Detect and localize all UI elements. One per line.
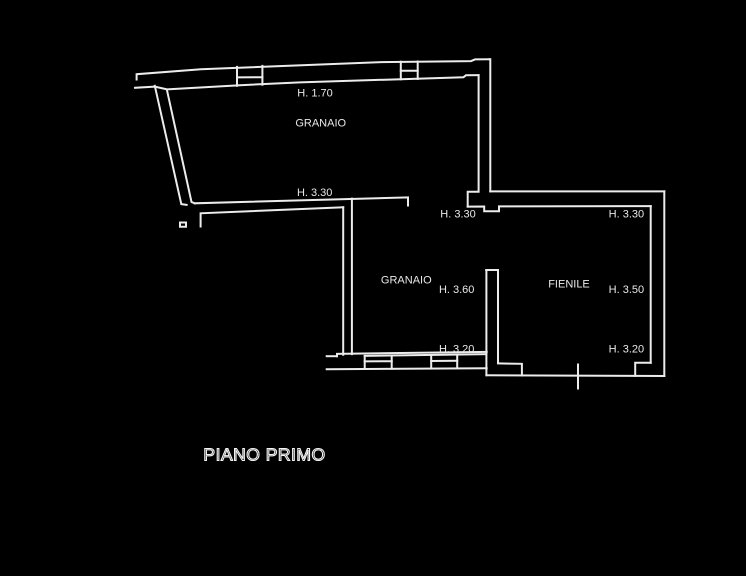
svg-text:H. 3.20: H. 3.20 [609, 343, 644, 355]
svg-text:FIENILE: FIENILE [548, 279, 590, 291]
svg-text:GRANAIO: GRANAIO [381, 275, 432, 287]
svg-text:H. 1.70: H. 1.70 [297, 88, 332, 100]
svg-text:H. 3.20: H. 3.20 [439, 343, 474, 355]
svg-text:H. 3.30: H. 3.30 [609, 209, 644, 221]
svg-text:H. 3.30: H. 3.30 [440, 209, 475, 221]
svg-text:H. 3.50: H. 3.50 [609, 284, 644, 296]
svg-text:H. 3.30: H. 3.30 [297, 187, 332, 199]
svg-text:H. 3.60: H. 3.60 [439, 284, 474, 296]
svg-text:GRANAIO: GRANAIO [295, 118, 346, 130]
svg-text:PIANO PRIMO: PIANO PRIMO [203, 445, 325, 465]
